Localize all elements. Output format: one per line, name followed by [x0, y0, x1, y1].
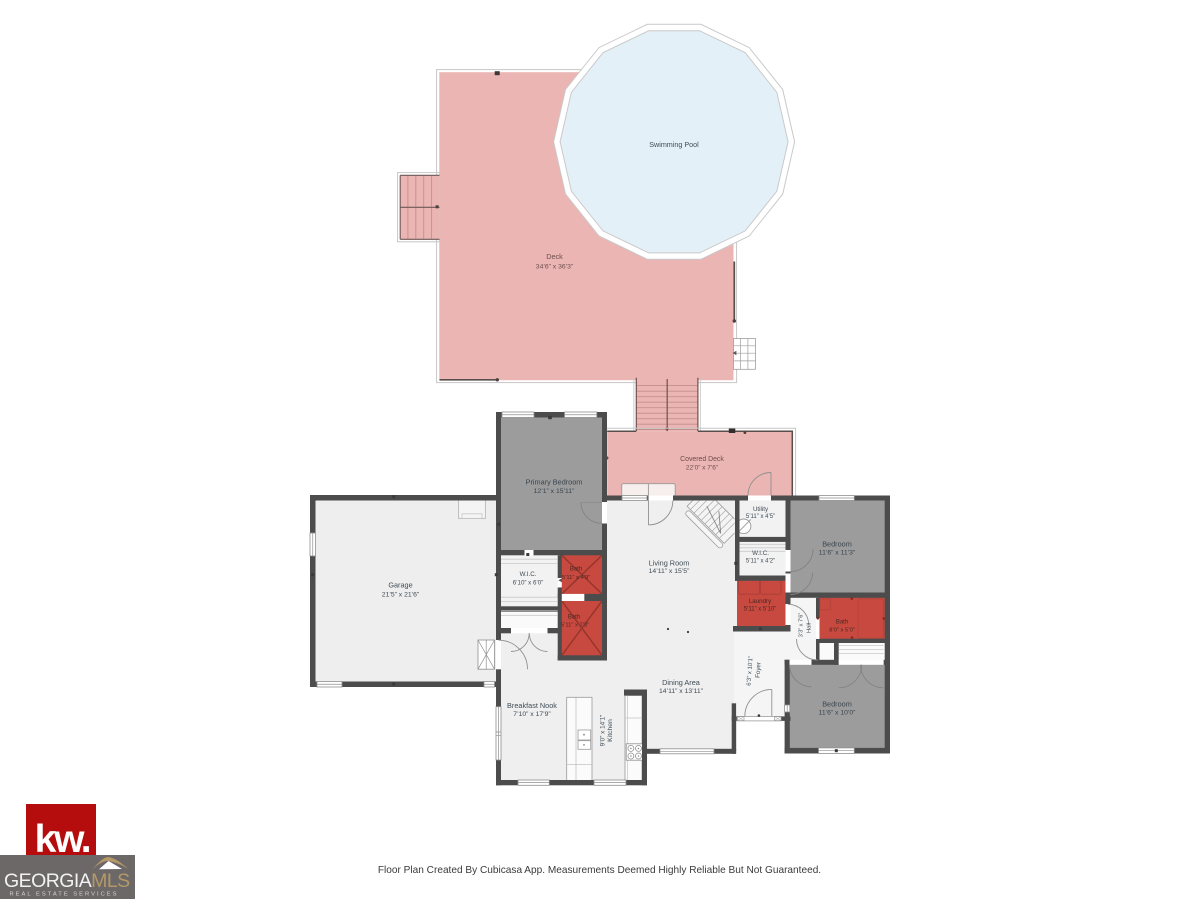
svg-text:Swimming Pool: Swimming Pool	[649, 140, 699, 149]
svg-text:Breakfast Nook: Breakfast Nook	[507, 701, 557, 710]
svg-text:Bedroom: Bedroom	[822, 700, 852, 709]
svg-text:5’11” x 4’5”: 5’11” x 4’5”	[746, 514, 775, 520]
svg-text:W.I.C.: W.I.C.	[752, 550, 769, 557]
svg-text:Floor Plan Created By Cubicasa: Floor Plan Created By Cubicasa App. Meas…	[378, 865, 821, 876]
svg-text:Garage: Garage	[388, 581, 412, 590]
svg-text:Hall: Hall	[807, 623, 813, 633]
svg-text:Dining Area: Dining Area	[662, 678, 701, 687]
svg-text:14’11” x 13’11”: 14’11” x 13’11”	[659, 688, 704, 695]
svg-text:11’6” x 10’0”: 11’6” x 10’0”	[819, 709, 857, 716]
svg-text:3’3” x 7’6”: 3’3” x 7’6”	[799, 613, 805, 638]
svg-text:6’10” x 6’0”: 6’10” x 6’0”	[513, 579, 544, 586]
svg-text:12’1” x 15’11”: 12’1” x 15’11”	[534, 488, 575, 495]
svg-text:Living Room: Living Room	[649, 559, 690, 568]
svg-text:Bedroom: Bedroom	[822, 539, 852, 548]
svg-text:21’5” x 21’6”: 21’5” x 21’6”	[382, 592, 420, 599]
svg-text:Bath: Bath	[570, 566, 582, 572]
svg-text:9’0” x 14’1”: 9’0” x 14’1”	[599, 715, 606, 747]
svg-text:REAL ESTATE SERVICES: REAL ESTATE SERVICES	[9, 892, 118, 898]
svg-text:Utility: Utility	[753, 506, 769, 513]
svg-text:8’0” x 5’0”: 8’0” x 5’0”	[829, 627, 855, 633]
svg-text:34’6” x 36’3”: 34’6” x 36’3”	[536, 264, 574, 271]
svg-text:22’0” x 7’6”: 22’0” x 7’6”	[686, 465, 718, 472]
svg-text:GEORGIAMLS: GEORGIAMLS	[4, 870, 130, 892]
svg-text:Kitchen: Kitchen	[607, 719, 614, 742]
svg-text:7’10” x 17’9”: 7’10” x 17’9”	[513, 711, 551, 718]
svg-text:kw.: kw.	[35, 818, 90, 861]
svg-text:Foyer: Foyer	[754, 662, 762, 678]
svg-text:Primary Bedroom: Primary Bedroom	[526, 477, 583, 486]
svg-text:W.I.C.: W.I.C.	[520, 571, 537, 578]
svg-text:Bath: Bath	[836, 619, 848, 625]
svg-text:Bath: Bath	[568, 615, 580, 621]
svg-text:5’11” x 7’3”: 5’11” x 7’3”	[561, 623, 589, 629]
svg-text:11’6” x 11’3”: 11’6” x 11’3”	[819, 549, 856, 556]
svg-text:Deck: Deck	[546, 252, 563, 261]
svg-text:Covered Deck: Covered Deck	[680, 456, 724, 463]
svg-text:14’11” x 15’5”: 14’11” x 15’5”	[649, 568, 690, 575]
svg-text:Laundry: Laundry	[749, 598, 772, 605]
svg-text:5’11” x 4’9”: 5’11” x 4’9”	[562, 575, 590, 581]
svg-text:5’11” x 5’10”: 5’11” x 5’10”	[744, 606, 777, 612]
svg-text:5’11” x 4’2”: 5’11” x 4’2”	[746, 558, 775, 564]
